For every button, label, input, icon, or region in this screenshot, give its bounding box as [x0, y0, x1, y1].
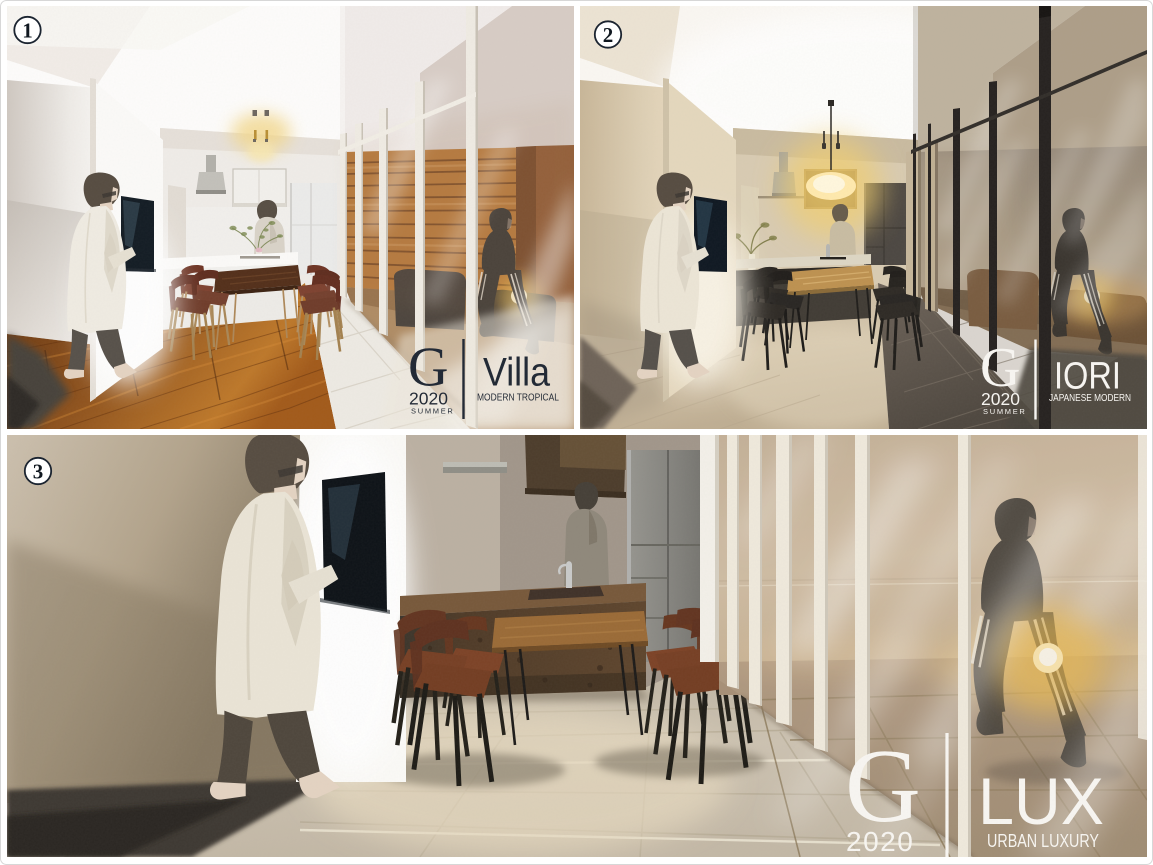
svg-text:1: 1 — [22, 19, 33, 43]
svg-text:2: 2 — [603, 23, 614, 47]
svg-text:3: 3 — [33, 460, 44, 484]
